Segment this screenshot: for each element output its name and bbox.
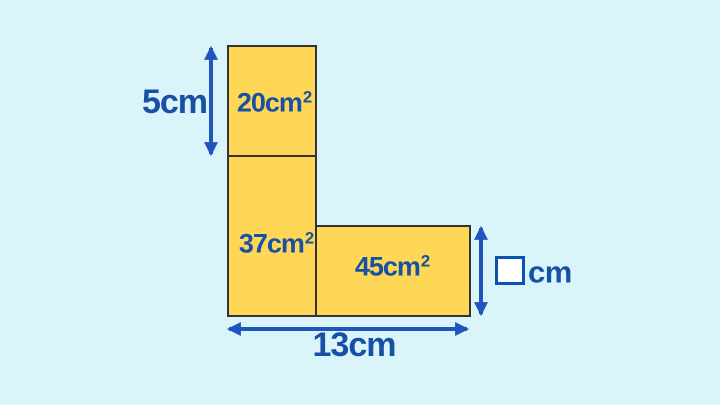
area-label-45cm2: 45cm2 <box>355 254 429 281</box>
area-exponent: 2 <box>303 89 311 106</box>
area-exponent: 2 <box>305 230 313 247</box>
geometry-area-diagram: 20cm2 37cm2 45cm2 5cm 13cm cm <box>0 0 720 405</box>
answer-input-box[interactable] <box>495 256 525 285</box>
area-label-20cm2: 20cm2 <box>237 90 311 117</box>
area-value: 45cm <box>355 252 420 282</box>
bottom-width-label: 13cm <box>313 328 396 362</box>
left-height-label: 5cm <box>142 85 207 119</box>
area-exponent: 2 <box>421 253 429 270</box>
area-value: 37cm <box>239 229 304 259</box>
answer-unit-label: cm <box>528 257 572 288</box>
area-label-37cm2: 37cm2 <box>239 231 313 258</box>
area-value: 20cm <box>237 88 302 118</box>
l-shape <box>228 46 470 316</box>
